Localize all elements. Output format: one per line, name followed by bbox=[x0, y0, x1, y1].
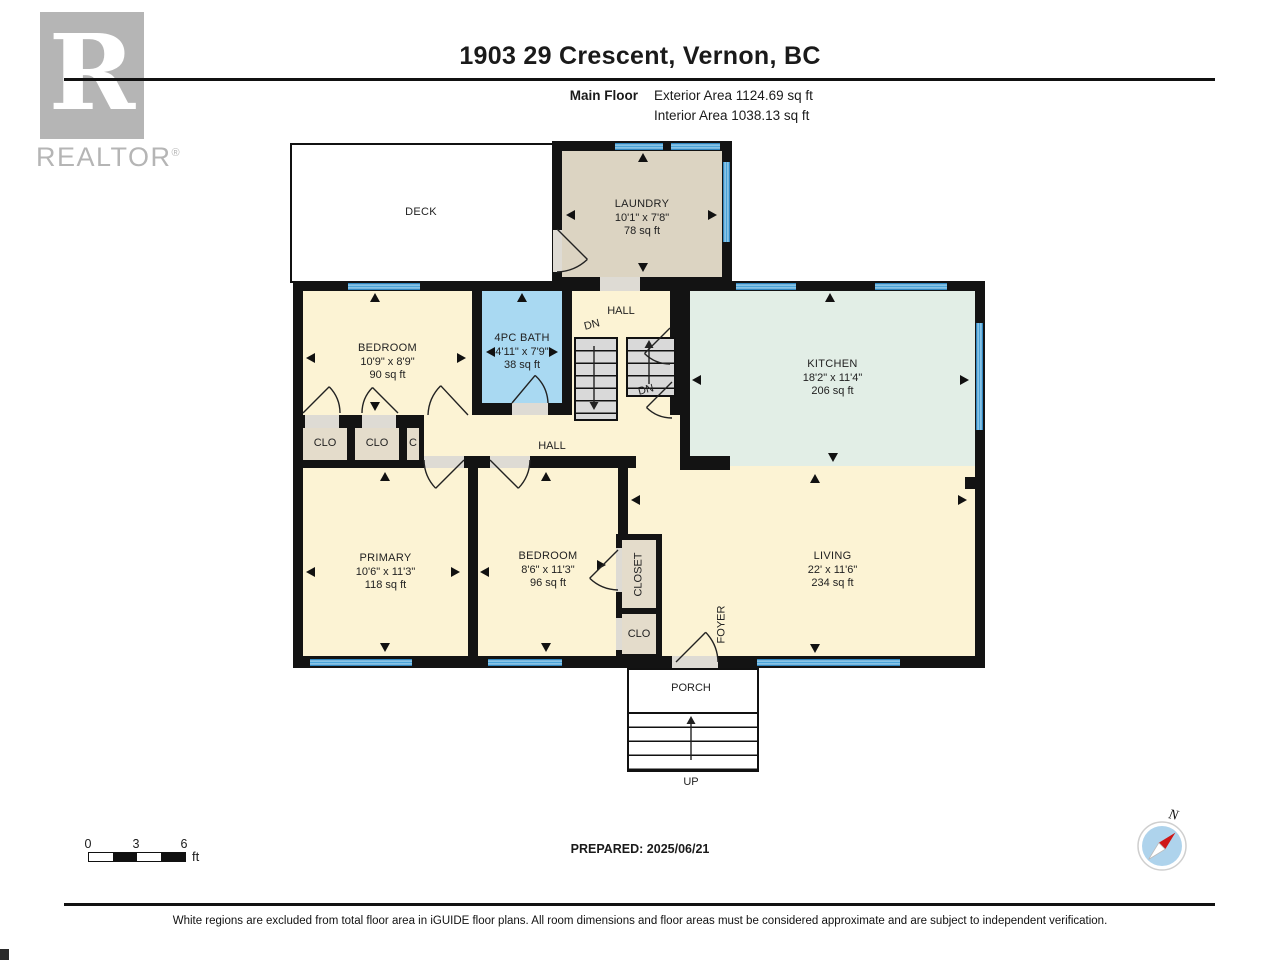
exterior-area: Exterior Area 1124.69 sq ft bbox=[654, 88, 813, 103]
arrow-icon bbox=[306, 567, 315, 577]
realtor-logo-word: REALTOR® bbox=[36, 142, 181, 173]
window-primary bbox=[310, 659, 412, 666]
label-deck: DECK bbox=[290, 206, 552, 220]
arrow-icon bbox=[541, 643, 551, 652]
arrow-icon bbox=[825, 293, 835, 302]
label-bedroom1: BEDROOM10'9" x 8'9"90 sq ft bbox=[303, 342, 472, 383]
window-bedroom1 bbox=[348, 283, 420, 290]
label-laundry: LAUNDRY10'1" x 7'8"78 sq ft bbox=[562, 198, 722, 239]
arrow-icon bbox=[370, 402, 380, 411]
label-living: LIVING22' x 11'6"234 sq ft bbox=[690, 550, 975, 591]
arrow-icon bbox=[638, 153, 648, 162]
floor-label: Main Floor bbox=[400, 88, 638, 103]
window-laundry-2 bbox=[671, 143, 720, 150]
arrow-icon bbox=[380, 472, 390, 481]
label-porch: PORCH bbox=[627, 682, 755, 696]
label-clo-a: CLO bbox=[303, 437, 347, 451]
arrow-icon bbox=[828, 453, 838, 462]
label-up: UP bbox=[627, 776, 755, 790]
label-clo-b: CLO bbox=[355, 437, 399, 451]
arrow-icon bbox=[692, 375, 701, 385]
arrow-icon bbox=[566, 210, 575, 220]
arrow-icon bbox=[306, 353, 315, 363]
realtor-logo: R bbox=[40, 12, 144, 139]
arrow-icon bbox=[597, 560, 606, 570]
corner-mark bbox=[0, 949, 9, 960]
arrow-icon bbox=[480, 567, 489, 577]
window-laundry-3 bbox=[723, 162, 730, 242]
arrow-icon bbox=[638, 263, 648, 272]
arrow-icon bbox=[457, 353, 466, 363]
interior-area: Interior Area 1038.13 sq ft bbox=[654, 108, 809, 123]
window-kitchen-2 bbox=[875, 283, 947, 290]
wall-notch bbox=[965, 477, 975, 489]
wall-stub bbox=[680, 456, 730, 470]
door-gap-primary bbox=[424, 456, 464, 468]
arrow-icon bbox=[541, 472, 551, 481]
compass-icon: N bbox=[1128, 802, 1200, 880]
window-laundry-1 bbox=[615, 143, 663, 150]
label-hall-upper: HALL bbox=[572, 305, 670, 319]
window-kitchen-3 bbox=[976, 323, 983, 430]
arrow-icon bbox=[380, 643, 390, 652]
label-kitchen: KITCHEN18'2" x 11'4"206 sq ft bbox=[690, 358, 975, 399]
label-bedroom2: BEDROOM8'6" x 11'3"96 sq ft bbox=[478, 550, 618, 591]
door-gap-laundry-hall bbox=[600, 277, 640, 291]
hall-living-opening bbox=[636, 456, 680, 468]
arrow-icon bbox=[486, 347, 495, 357]
arrow-icon bbox=[370, 293, 380, 302]
arrow-icon bbox=[810, 644, 820, 653]
label-clo-c: CLO bbox=[622, 628, 656, 642]
label-hall: HALL bbox=[424, 440, 680, 454]
stairs-down bbox=[574, 337, 618, 421]
window-living bbox=[757, 659, 900, 666]
compass-n-label: N bbox=[1166, 807, 1180, 824]
label-foyer: FOYER bbox=[716, 595, 729, 655]
arrow-icon bbox=[960, 375, 969, 385]
arrow-icon bbox=[958, 495, 967, 505]
arrow-icon bbox=[708, 210, 717, 220]
prepared-date: PREPARED: 2025/06/21 bbox=[0, 842, 1280, 856]
label-primary: PRIMARY10'6" x 11'3"118 sq ft bbox=[303, 552, 468, 593]
header-rule bbox=[64, 78, 1215, 81]
door-gap-bedroom2 bbox=[490, 456, 530, 468]
arrow-icon bbox=[549, 347, 558, 357]
arrow-icon bbox=[517, 293, 527, 302]
window-kitchen-1 bbox=[736, 283, 796, 290]
porch-steps bbox=[627, 712, 759, 772]
arrow-icon bbox=[631, 495, 640, 505]
arrow-icon bbox=[451, 567, 460, 577]
page-title: 1903 29 Crescent, Vernon, BC bbox=[0, 42, 1280, 71]
door-gap-front bbox=[672, 656, 718, 668]
arrow-icon bbox=[810, 474, 820, 483]
label-closet: CLOSET bbox=[633, 545, 646, 605]
window-bedroom2 bbox=[488, 659, 562, 666]
footer-rule bbox=[64, 903, 1215, 906]
door-gap-clo-a bbox=[305, 415, 339, 428]
disclaimer-text: White regions are excluded from total fl… bbox=[0, 915, 1280, 927]
label-c: C bbox=[406, 437, 420, 451]
door-gap-laundry-deck bbox=[553, 230, 562, 272]
door-gap-clo-b bbox=[362, 415, 396, 428]
door-gap-bath bbox=[512, 403, 548, 415]
realtor-logo-letter: R bbox=[49, 23, 135, 123]
